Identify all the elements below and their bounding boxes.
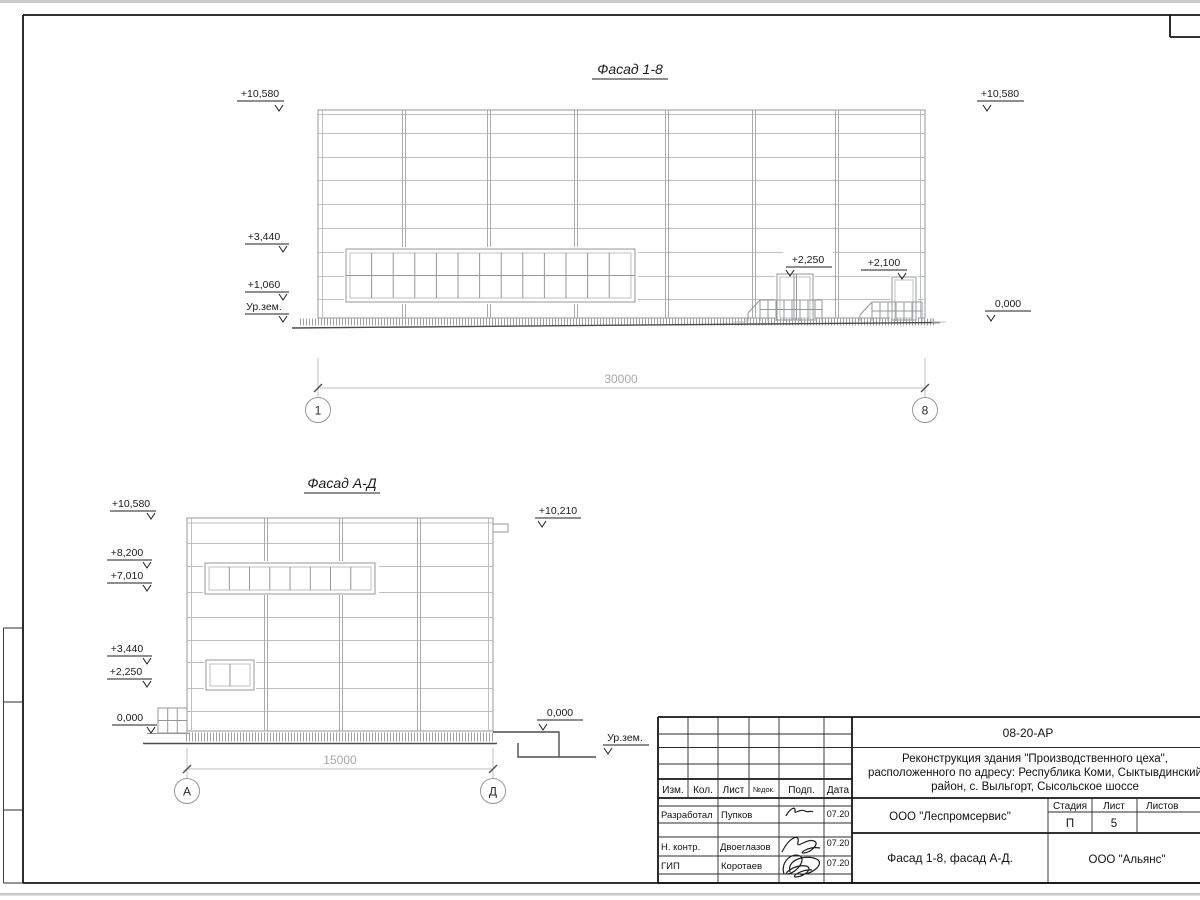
svg-text:Лист: Лист	[723, 785, 745, 796]
svg-text:Н. контр.: Н. контр.	[661, 842, 700, 853]
svg-text:07.20: 07.20	[827, 809, 850, 819]
svg-text:07.20: 07.20	[827, 858, 850, 868]
axis-label-d: Д	[489, 785, 497, 799]
drawing-sheet: Фасад 1-8	[0, 0, 1200, 900]
svg-text:Пупков: Пупков	[721, 810, 752, 821]
facade-a-d-title: Фасад А-Д	[307, 475, 376, 491]
svg-text:+10,210: +10,210	[539, 505, 577, 517]
svg-text:0,000: 0,000	[995, 298, 1021, 310]
svg-text:+3,440: +3,440	[248, 231, 281, 243]
axis-label-a: А	[183, 785, 191, 799]
svg-text:Листов: Листов	[1146, 801, 1179, 812]
axis-label-8: 8	[922, 404, 929, 418]
document-code: 08-20-АР	[1003, 726, 1054, 740]
facade-1-8-window-band	[344, 247, 638, 304]
svg-text:Ур.зем.: Ур.зем.	[246, 301, 282, 313]
svg-text:Стадия: Стадия	[1053, 801, 1087, 812]
svg-text:+10,580: +10,580	[981, 88, 1019, 100]
svg-text:Ур.зем.: Ур.зем.	[607, 732, 643, 744]
paper	[0, 0, 1200, 900]
svg-text:Дата: Дата	[827, 785, 850, 796]
svg-text:№док.: №док.	[753, 785, 775, 794]
stage-value: П	[1066, 818, 1074, 830]
svg-text:Реконструкция здания "Производ: Реконструкция здания "Производственного …	[902, 753, 1168, 765]
svg-text:0,000: 0,000	[547, 707, 573, 719]
company-name: ООО "Леспромсервис"	[889, 811, 1011, 823]
axis-label-1: 1	[315, 404, 322, 418]
facade-a-d-small-window	[204, 658, 256, 692]
svg-text:Изм.: Изм.	[662, 785, 683, 796]
contractor-name: ООО "Альянс"	[1089, 854, 1166, 866]
svg-text:расположенного по адресу: Респ: расположенного по адресу: Республика Ком…	[868, 767, 1200, 779]
window-edge-top	[0, 0, 1200, 3]
svg-text:07.20: 07.20	[827, 838, 850, 848]
svg-text:Лист: Лист	[1103, 801, 1125, 812]
window-edge-bottom	[0, 893, 1200, 896]
facade-1-8-title: Фасад 1-8	[597, 61, 663, 77]
svg-text:Разработал: Разработал	[661, 810, 713, 821]
dimension-30000: 30000	[604, 372, 638, 386]
sheet-number: 5	[1111, 818, 1117, 830]
svg-text:Кол.: Кол.	[693, 785, 713, 796]
svg-text:+2,250: +2,250	[792, 254, 825, 266]
svg-text:ГИП: ГИП	[661, 861, 680, 872]
stage-header: Стадия Лист Листов	[1053, 801, 1179, 812]
svg-text:Подп.: Подп.	[788, 785, 815, 796]
svg-text:+1,060: +1,060	[248, 279, 281, 291]
svg-text:0,000: 0,000	[117, 712, 143, 724]
dimension-15000: 15000	[323, 753, 357, 767]
svg-text:район, с. Выльгорт, Сысольское: район, с. Выльгорт, Сысольское шоссе	[931, 781, 1139, 793]
svg-text:+10,580: +10,580	[241, 88, 279, 100]
svg-text:Коротаев: Коротаев	[721, 861, 762, 872]
svg-text:+8,200: +8,200	[111, 547, 144, 559]
svg-text:+7,010: +7,010	[111, 570, 144, 582]
svg-text:+10,580: +10,580	[112, 498, 150, 510]
drawing-title: Фасад 1-8, фасад А-Д.	[887, 851, 1013, 865]
svg-text:+3,440: +3,440	[111, 643, 144, 655]
svg-text:Двоеглазов: Двоеглазов	[720, 842, 771, 853]
svg-text:+2,100: +2,100	[868, 257, 901, 269]
facade-a-d-window-band	[203, 561, 379, 595]
facade-1-8-door-1	[775, 272, 815, 322]
svg-text:+2,250: +2,250	[110, 666, 143, 678]
